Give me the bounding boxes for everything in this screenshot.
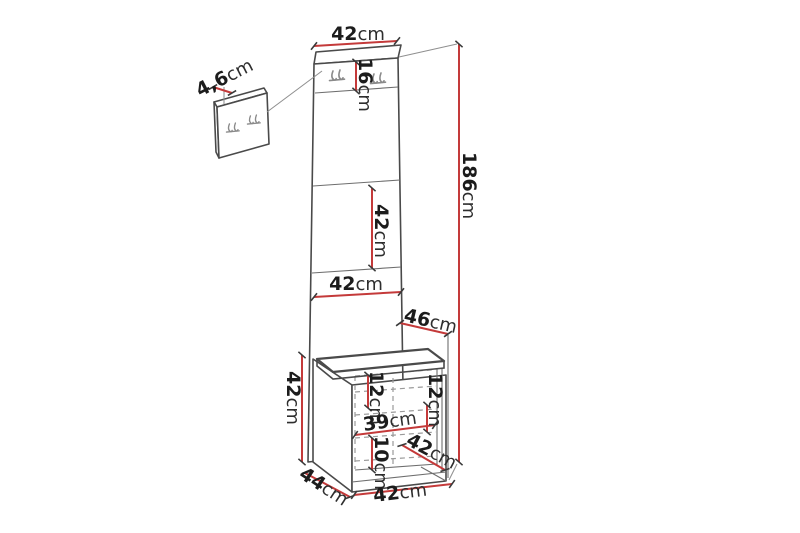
dimension-label-bench-height: 42cm: [282, 371, 304, 425]
diagram-canvas: 42cm 16cm 4,6cm 186cm 42cm 42cm 46cm 42c…: [0, 0, 800, 533]
dimension-label-hook-strip-height: 16cm: [354, 58, 376, 112]
dimension-label-shelf-gap-right: 12cm: [424, 373, 446, 427]
dimension-label-seat-depth: 46cm: [402, 304, 459, 338]
dimension-label-top-width: 42cm: [331, 23, 385, 45]
dimension-label-total-height: 186cm: [458, 152, 480, 219]
dimension-label-mid-panel-height: 42cm: [370, 204, 392, 258]
dimension-label-lower-panel-width: 42cm: [329, 273, 383, 295]
dimension-label-bottom-gap: 10cm: [370, 436, 392, 490]
extension-line-top: [399, 44, 457, 57]
furniture-dimension-diagram: 42cm 16cm 4,6cm 186cm 42cm 42cm 46cm 42c…: [0, 0, 800, 533]
